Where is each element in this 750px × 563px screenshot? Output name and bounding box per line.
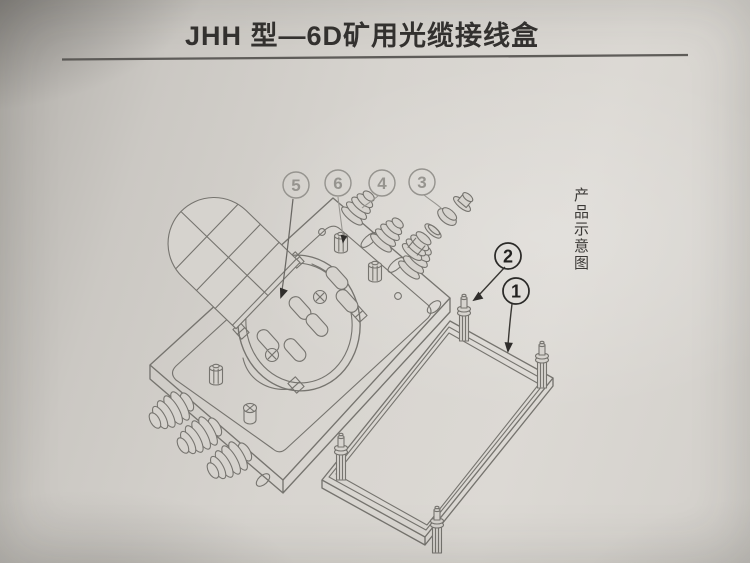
svg-text:5: 5 [291, 176, 300, 195]
corner-post [431, 506, 444, 553]
callout-6: 6 [325, 170, 351, 196]
cable-glands-sw [143, 386, 257, 487]
screw-bolt [244, 403, 257, 424]
leader-6 [338, 197, 343, 237]
callout-4: 4 [369, 170, 395, 196]
leader-2-arrow [470, 292, 483, 305]
callout-5: 5 [283, 172, 309, 198]
callout-1: 1 [503, 278, 529, 304]
leader-5-arrow [276, 288, 287, 301]
leader-3 [424, 195, 442, 209]
svg-text:1: 1 [511, 282, 521, 302]
callout-2: 2 [495, 243, 521, 269]
leader-2 [479, 267, 505, 295]
plug-cap [451, 188, 477, 214]
callout-3: 3 [409, 169, 435, 195]
corner-post [335, 433, 348, 480]
leader-1 [508, 304, 512, 345]
svg-text:3: 3 [417, 173, 426, 192]
title-underline [62, 55, 688, 60]
standoff-bolt [369, 261, 382, 282]
screw [266, 349, 279, 362]
screw [314, 291, 327, 304]
cover-plate [322, 294, 553, 553]
gland-exploded-parts [400, 188, 478, 263]
corner-post [536, 341, 549, 388]
seal-dome [435, 204, 461, 229]
svg-text:2: 2 [503, 247, 513, 267]
svg-text:4: 4 [377, 174, 387, 193]
standoff-bolt [210, 364, 223, 385]
exploded-diagram: 5 6 4 3 2 1 [0, 0, 750, 563]
lid-flap [149, 178, 300, 328]
leader-5 [282, 199, 293, 290]
corner-post [458, 294, 471, 341]
svg-text:6: 6 [333, 174, 342, 193]
cable-gland [339, 185, 381, 228]
